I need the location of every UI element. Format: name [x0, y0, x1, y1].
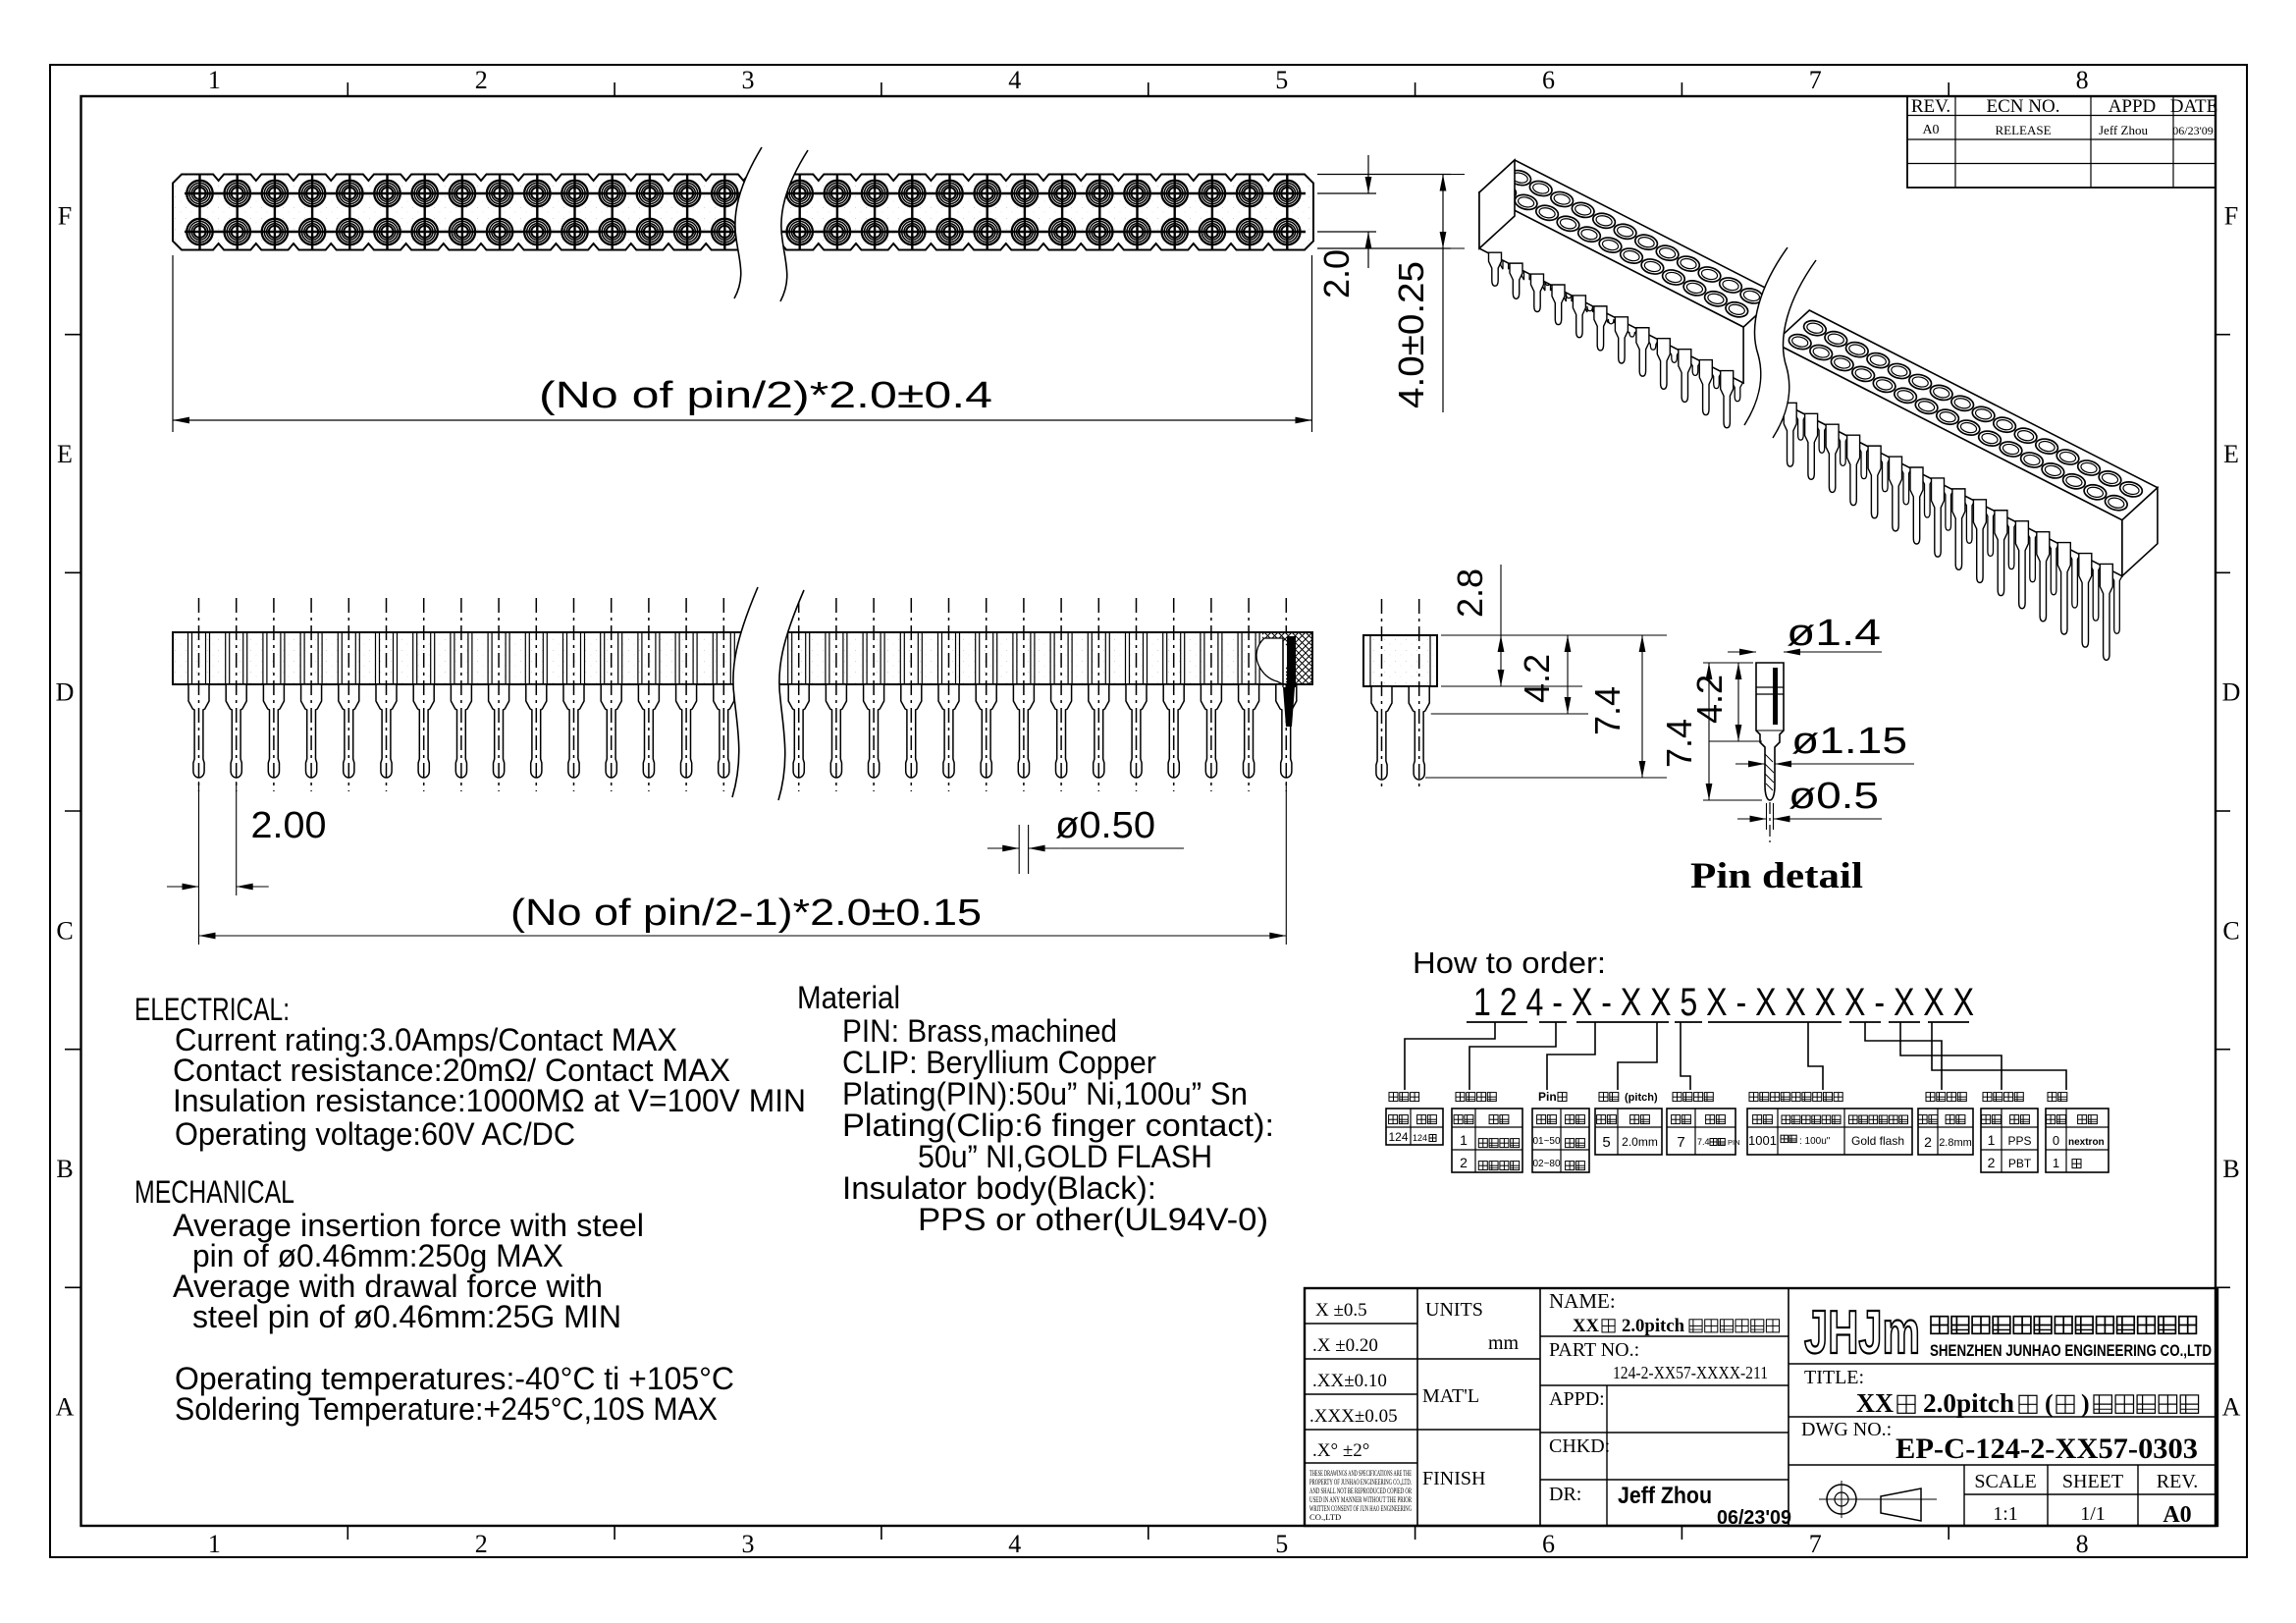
svg-text:2: 2 — [1988, 1155, 1996, 1170]
svg-text:XX: XX — [1573, 1316, 1599, 1336]
svg-text:FINISH: FINISH — [1422, 1468, 1485, 1489]
svg-text:F: F — [58, 201, 72, 230]
svg-text:2: 2 — [1924, 1134, 1932, 1150]
svg-text:REV.: REV. — [1911, 96, 1950, 117]
svg-text:Soldering Temperature:+245°C,1: Soldering Temperature:+245°C,10S MAX — [175, 1391, 718, 1427]
svg-text:1: 1 — [2053, 1156, 2059, 1170]
svg-text:REV.: REV. — [2157, 1471, 2198, 1492]
svg-text:Insulation resistance:1000MΩ a: Insulation resistance:1000MΩ at V=100V M… — [173, 1083, 806, 1118]
svg-text:APPD: APPD — [2109, 96, 2157, 117]
svg-text:PBT: PBT — [2008, 1157, 2032, 1170]
svg-text:Pin detail: Pin detail — [1690, 856, 1863, 896]
svg-text:7: 7 — [1809, 66, 1822, 94]
svg-text:JHJm: JHJm — [1804, 1299, 1920, 1367]
svg-text:D: D — [56, 678, 75, 707]
svg-text:Gold flash: Gold flash — [1851, 1134, 1904, 1148]
svg-text:4: 4 — [1008, 1530, 1021, 1558]
svg-text:C: C — [2222, 916, 2239, 945]
svg-text:7.4: 7.4 — [1697, 1137, 1710, 1147]
svg-text:DR:: DR: — [1549, 1484, 1581, 1505]
svg-text:4: 4 — [1008, 66, 1021, 94]
svg-text:(pitch): (pitch) — [1625, 1092, 1658, 1104]
svg-text:2.8: 2.8 — [1450, 568, 1490, 618]
svg-text:A: A — [2222, 1393, 2241, 1422]
svg-text:CO.,LTD: CO.,LTD — [1309, 1512, 1341, 1522]
svg-text:2: 2 — [1460, 1155, 1468, 1170]
svg-text:PPS: PPS — [2007, 1134, 2031, 1148]
svg-text:6: 6 — [1542, 1530, 1555, 1558]
svg-text:CHKD:: CHKD: — [1549, 1435, 1610, 1457]
svg-text:Jeff Zhou: Jeff Zhou — [2099, 123, 2148, 137]
svg-text:8: 8 — [2076, 1530, 2089, 1558]
svg-text:UNITS: UNITS — [1425, 1299, 1483, 1321]
svg-text:1: 1 — [1988, 1132, 1996, 1148]
svg-text:8: 8 — [2076, 66, 2089, 94]
svg-text:124: 124 — [1413, 1133, 1427, 1143]
svg-text:.X° ±2°: .X° ±2° — [1312, 1440, 1369, 1461]
svg-text:5: 5 — [1602, 1134, 1610, 1151]
svg-text:PPS or other(UL94V-0): PPS or other(UL94V-0) — [918, 1202, 1268, 1237]
svg-text:4.0±0.25: 4.0±0.25 — [1391, 261, 1431, 408]
svg-text:.XX±0.10: .XX±0.10 — [1312, 1371, 1387, 1391]
svg-text:F: F — [2224, 201, 2238, 230]
svg-text:XX: XX — [1856, 1388, 1894, 1418]
svg-text:DATE: DATE — [2170, 96, 2218, 117]
svg-text:Plating(Clip:6 finger contact): Plating(Clip:6 finger contact): — [842, 1108, 1274, 1143]
svg-text:Material: Material — [797, 980, 900, 1015]
svg-text:Insulator body(Black):: Insulator body(Black): — [842, 1170, 1156, 1206]
svg-text:MAT'L: MAT'L — [1422, 1385, 1479, 1407]
svg-text:Pin: Pin — [1538, 1090, 1557, 1104]
svg-text:X ±0.5: X ±0.5 — [1315, 1300, 1367, 1321]
svg-text:02~80: 02~80 — [1532, 1159, 1561, 1169]
svg-text:C: C — [56, 916, 73, 945]
svg-text:nextron: nextron — [2068, 1137, 2105, 1148]
svg-text:.XXX±0.05: .XXX±0.05 — [1309, 1406, 1398, 1427]
svg-text:1:1: 1:1 — [1993, 1503, 2018, 1525]
svg-text:PART NO.:: PART NO.: — [1549, 1339, 1639, 1361]
svg-text:PIN: PIN — [1728, 1138, 1740, 1147]
svg-text:(: ( — [2045, 1389, 2054, 1418]
svg-text:1: 1 — [208, 1530, 221, 1558]
svg-text:6: 6 — [1542, 66, 1555, 94]
svg-text:01~50: 01~50 — [1532, 1136, 1561, 1147]
svg-text:7: 7 — [1809, 1530, 1822, 1558]
svg-text:2.8mm: 2.8mm — [1939, 1137, 1972, 1149]
svg-text:CLIP: Beryllium Copper: CLIP: Beryllium Copper — [842, 1045, 1156, 1080]
svg-text:ECN NO.: ECN NO. — [1987, 96, 2060, 117]
svg-text:(No of pin/2-1)*2.0±0.15: (No of pin/2-1)*2.0±0.15 — [510, 893, 982, 934]
svg-text:.X ±0.20: .X ±0.20 — [1312, 1335, 1378, 1356]
svg-text:2.0: 2.0 — [1316, 249, 1357, 298]
svg-text:2: 2 — [475, 66, 488, 94]
svg-text:5: 5 — [1275, 66, 1288, 94]
svg-text:4.2: 4.2 — [1689, 675, 1730, 724]
svg-text:2.0pitch: 2.0pitch — [1622, 1316, 1684, 1336]
svg-text:3: 3 — [742, 66, 755, 94]
svg-text:124: 124 — [1388, 1130, 1408, 1144]
svg-text:5: 5 — [1275, 1530, 1288, 1558]
svg-text:SCALE: SCALE — [1974, 1471, 2036, 1492]
svg-text:4.2: 4.2 — [1517, 654, 1557, 703]
svg-text:mm: mm — [1488, 1332, 1520, 1354]
svg-text:D: D — [2222, 678, 2241, 707]
svg-text:ø0.5: ø0.5 — [1789, 776, 1879, 817]
svg-text:124-2-XX57-XXXX-211: 124-2-XX57-XXXX-211 — [1613, 1363, 1768, 1382]
svg-text:E: E — [2223, 440, 2239, 468]
svg-text:1 2 4 - X - X X 5 X - X X X X: 1 2 4 - X - X X 5 X - X X X X - X X X — [1473, 981, 1974, 1024]
svg-text:0: 0 — [2053, 1133, 2059, 1148]
svg-text:Operating voltage:60V AC/DC: Operating voltage:60V AC/DC — [175, 1116, 575, 1152]
svg-text:PIN: Brass,machined: PIN: Brass,machined — [842, 1013, 1117, 1049]
svg-text:steel pin of ø0.46mm:25G MIN: steel pin of ø0.46mm:25G MIN — [192, 1299, 621, 1334]
svg-text:7: 7 — [1677, 1134, 1684, 1151]
svg-text:7.4: 7.4 — [1587, 686, 1628, 735]
svg-text:ø1.4: ø1.4 — [1787, 613, 1881, 654]
svg-text:1: 1 — [208, 66, 221, 94]
svg-text:How to order:: How to order: — [1413, 946, 1606, 980]
svg-text:(No of pin/2)*2.0±0.4: (No of pin/2)*2.0±0.4 — [539, 375, 992, 416]
svg-text:APPD:: APPD: — [1549, 1388, 1605, 1410]
svg-text:3: 3 — [742, 1530, 755, 1558]
svg-text:A0: A0 — [1922, 123, 1939, 137]
svg-text:A: A — [56, 1393, 75, 1422]
svg-text:EP-C-124-2-XX57-0303: EP-C-124-2-XX57-0303 — [1896, 1433, 2198, 1465]
svg-text:50u” NI,GOLD FLASH: 50u” NI,GOLD FLASH — [918, 1139, 1212, 1174]
svg-text:06/23'09: 06/23'09 — [1717, 1507, 1791, 1529]
svg-text:TITLE:: TITLE: — [1804, 1367, 1864, 1388]
svg-text:Jeff Zhou: Jeff Zhou — [1618, 1483, 1712, 1509]
svg-text:2: 2 — [475, 1530, 488, 1558]
svg-text:SHEET: SHEET — [2062, 1471, 2123, 1492]
svg-text:ø0.50: ø0.50 — [1055, 805, 1155, 846]
svg-text:B: B — [56, 1155, 73, 1183]
svg-text:2.00: 2.00 — [251, 805, 327, 846]
svg-text:7.4: 7.4 — [1659, 719, 1699, 768]
svg-text:MECHANICAL: MECHANICAL — [134, 1174, 294, 1210]
svg-text:Plating(PIN):50u” Ni,100u” Sn: Plating(PIN):50u” Ni,100u” Sn — [842, 1076, 1248, 1111]
svg-text:E: E — [57, 440, 73, 468]
svg-text:1/1: 1/1 — [2080, 1503, 2106, 1525]
svg-text:2.0mm: 2.0mm — [1622, 1135, 1658, 1149]
svg-text:2.0pitch: 2.0pitch — [1923, 1388, 2014, 1418]
svg-text:06/23'09: 06/23'09 — [2172, 124, 2214, 137]
svg-text:: 100u": : 100u" — [1799, 1136, 1831, 1147]
svg-text:RELEASE: RELEASE — [1995, 123, 2051, 137]
svg-text:NAME:: NAME: — [1549, 1289, 1616, 1313]
svg-text:B: B — [2222, 1155, 2239, 1183]
svg-text:): ) — [2081, 1389, 2090, 1418]
svg-text:ø1.15: ø1.15 — [1791, 721, 1907, 762]
svg-text:1001: 1001 — [1748, 1133, 1777, 1148]
svg-text:A0: A0 — [2163, 1502, 2191, 1528]
svg-text:1: 1 — [1460, 1132, 1468, 1148]
svg-text:SHENZHEN JUNHAO ENGINEERING CO: SHENZHEN JUNHAO ENGINEERING CO.,LTD — [1930, 1341, 2212, 1360]
svg-text:DWG NO.:: DWG NO.: — [1801, 1419, 1892, 1440]
